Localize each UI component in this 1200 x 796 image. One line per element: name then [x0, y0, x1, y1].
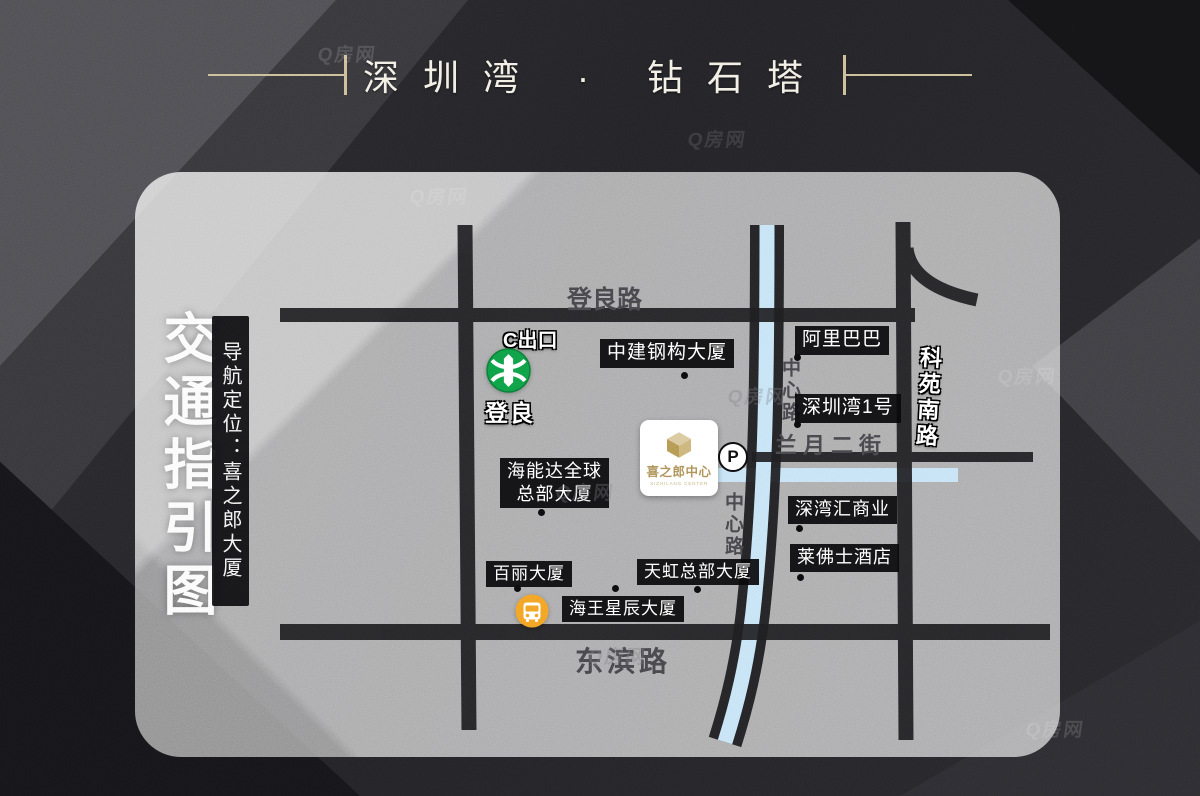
poi-dot [796, 525, 803, 532]
landmark-label: 深湾汇商业 [788, 496, 897, 524]
poi-dot [794, 354, 801, 361]
poi-dot [538, 509, 545, 516]
landmark-label: 海王星辰大厦 [562, 596, 684, 622]
landmark-label: 海能达全球 总部大厦 [500, 458, 609, 508]
metro-icon [486, 348, 531, 398]
poi-dot [681, 372, 688, 379]
road-label-zhongxin-lower: 中心路 [719, 492, 746, 558]
property-name: 喜之郎中心 [646, 461, 711, 480]
property-subtext: XIZHILANG CENTER [650, 481, 708, 486]
landmark-label: 天虹总部大厦 [637, 559, 759, 585]
landmark-label: 阿里巴巴 [795, 326, 889, 355]
title-endbar-left [344, 55, 347, 95]
transit-map: 登良路 东滨路 兰月二街 中心路 中心路 科苑南路 C出口 登良 中建钢构大厦 … [135, 172, 1060, 757]
title-rule-right [846, 74, 972, 76]
header: 深圳湾 · 钻石塔 [208, 52, 972, 98]
parking-icon: P [718, 442, 748, 472]
metro-station-label: 登良 [485, 394, 535, 428]
navigation-locator-strip: 导航定位：喜之郎大厦 [212, 316, 249, 606]
road-keyuan-south [903, 222, 906, 740]
road-label-dengliang: 登良路 [567, 280, 642, 316]
poi-dot [794, 421, 801, 428]
poi-dot [514, 585, 521, 592]
landmark-label: 莱佛士酒店 [790, 544, 899, 572]
landmark-label: 深圳湾1号 [795, 394, 901, 423]
watermark: Q房网 [686, 125, 749, 152]
navigation-locator-text: 导航定位：喜之郎大厦 [216, 341, 245, 581]
road-label-lanyue: 兰月二街 [775, 428, 887, 460]
road-keyuan-branch [907, 248, 977, 300]
property-card: 喜之郎中心 XIZHILANG CENTER [640, 420, 718, 496]
poi-dot [797, 574, 804, 581]
title-rule-left [208, 74, 344, 76]
page-title: 深圳湾 · 钻石塔 [357, 49, 833, 101]
landmark-label: 中建钢构大厦 [600, 339, 734, 368]
road-label-dongbin: 东滨路 [575, 640, 671, 680]
bus-icon [515, 594, 549, 633]
road-left-vertical [465, 225, 469, 730]
landmark-label: 百丽大厦 [486, 561, 572, 587]
cube-logo-icon [663, 430, 695, 460]
poi-dot [694, 586, 701, 593]
poi-dot [612, 585, 619, 592]
road-label-keyuan-south: 科苑南路 [908, 345, 945, 451]
